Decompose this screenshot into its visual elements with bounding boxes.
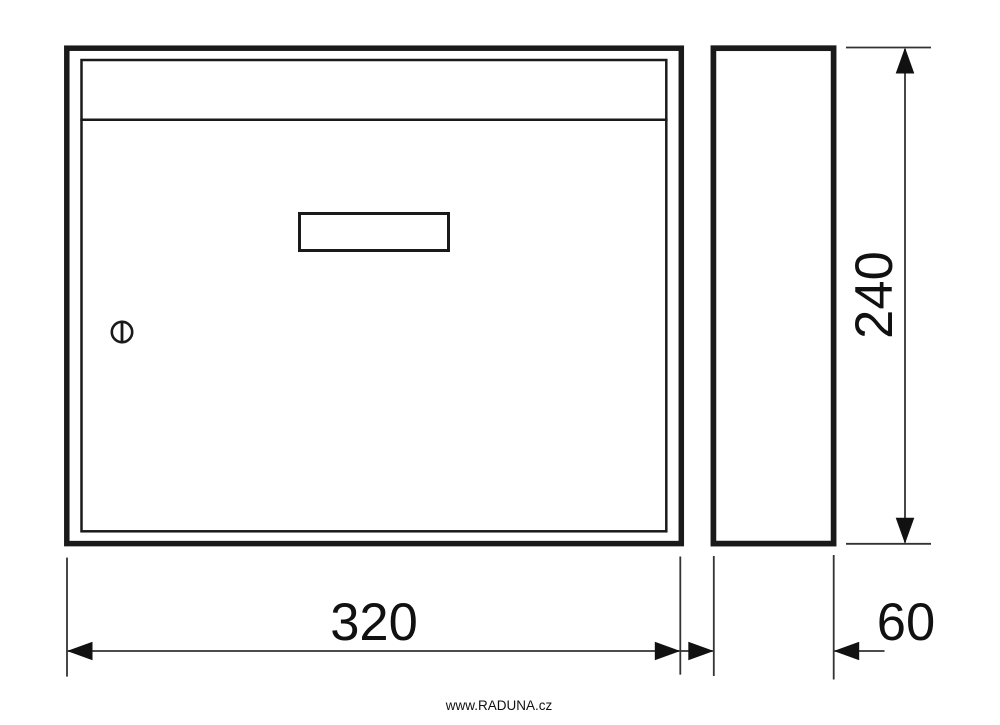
svg-text:www.RADUNA.cz: www.RADUNA.cz [445, 698, 553, 713]
svg-text:60: 60 [877, 593, 935, 652]
svg-text:320: 320 [330, 593, 418, 652]
svg-text:240: 240 [845, 251, 904, 339]
